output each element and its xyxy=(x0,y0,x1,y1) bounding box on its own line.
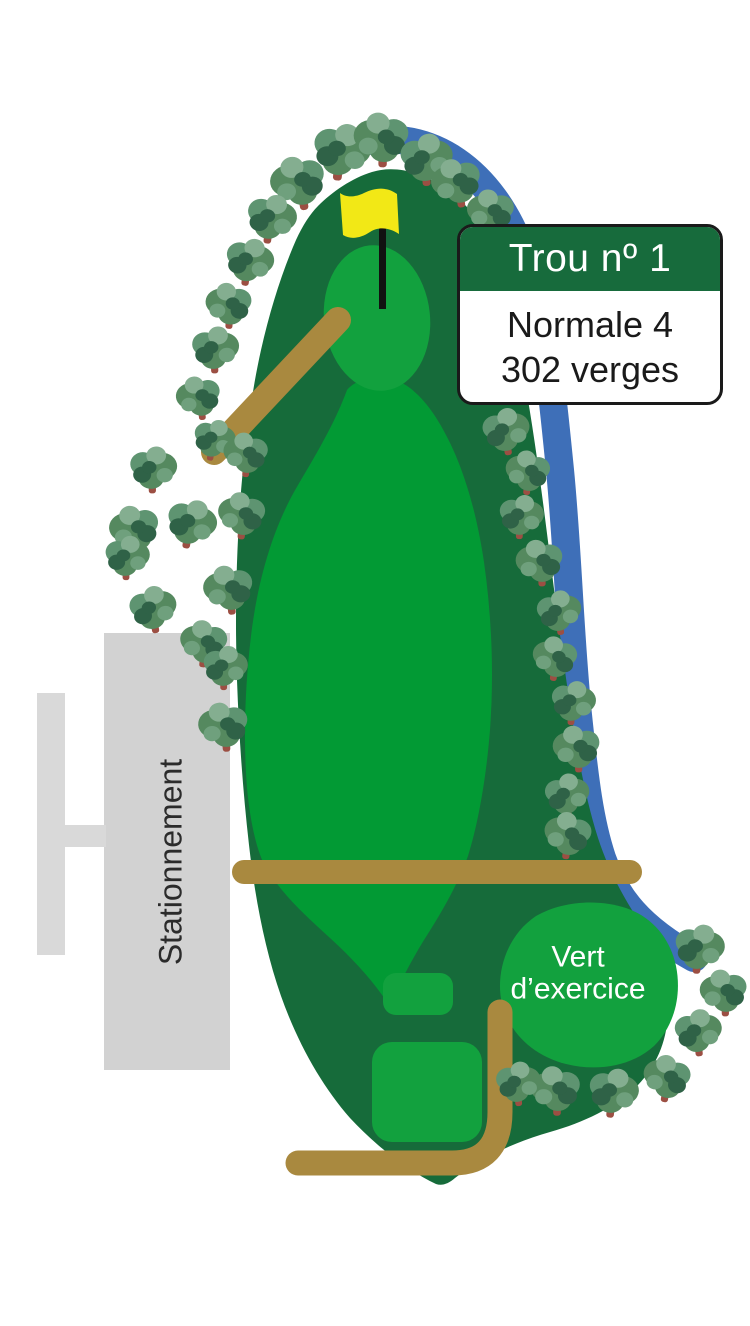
tree-icon xyxy=(163,496,220,553)
practice-green-label-line2: d’exercice xyxy=(510,974,645,1006)
practice-green-label-line1: Vert xyxy=(510,942,645,974)
parking-label: Stationnement xyxy=(153,759,190,965)
tee-box-small xyxy=(383,973,453,1015)
hole-info-card-body: Normale 4 302 verges xyxy=(460,291,720,402)
hole-distance: 302 verges xyxy=(501,347,679,392)
tee-box-large xyxy=(372,1042,482,1142)
hole-par: Normale 4 xyxy=(507,302,673,347)
tree-icon xyxy=(673,1007,724,1058)
parking-row-connector xyxy=(65,825,106,847)
tree-icon xyxy=(192,326,240,374)
tree-icon xyxy=(174,374,223,423)
tree-icon xyxy=(130,446,178,494)
practice-green-label: Vert d’exercice xyxy=(510,942,645,1007)
tree-icon xyxy=(699,969,747,1017)
hole-title: Trou nº 1 xyxy=(509,237,672,281)
hole-info-card-header: Trou nº 1 xyxy=(460,227,720,291)
tree-icon xyxy=(204,282,252,330)
golf-hole-map: Trou nº 1 Normale 4 302 verges Stationne… xyxy=(0,0,750,1326)
parking-row-bar xyxy=(37,693,65,955)
hole-info-card: Trou nº 1 Normale 4 302 verges xyxy=(457,224,723,405)
tree-icon xyxy=(127,583,181,637)
tree-icon xyxy=(674,923,727,976)
course-map-canvas xyxy=(0,0,750,1326)
